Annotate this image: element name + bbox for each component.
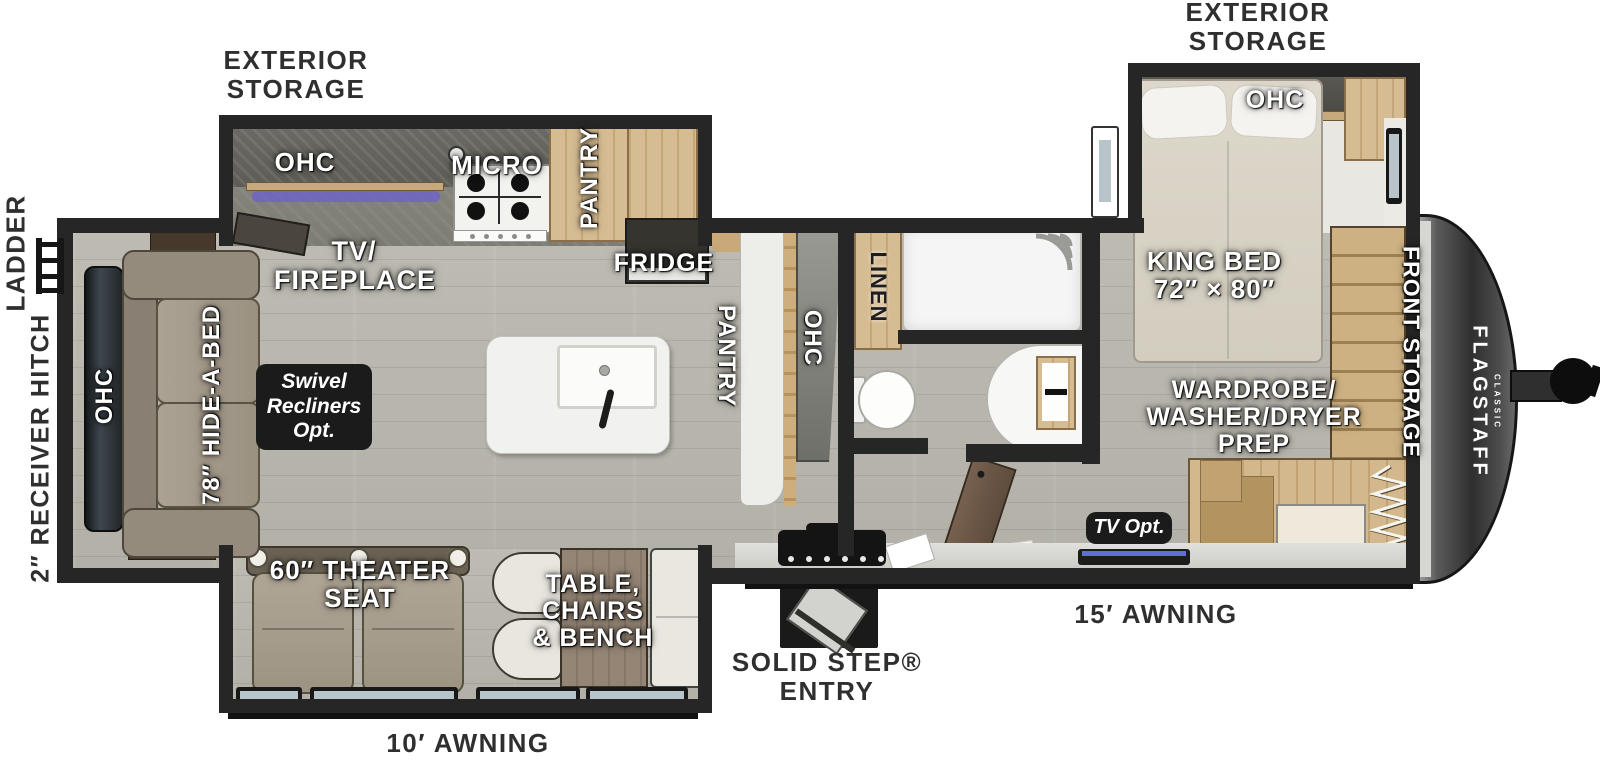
bath-wall-bottom-right [966,444,1100,462]
hall-pantry-label: PANTRY [712,305,740,407]
bedroom-window-left [1091,126,1119,218]
awning-10-label: 10′ AWNING [368,729,568,758]
grate-line [459,196,541,198]
label-line: KING BED [1122,247,1307,275]
kitchen-pantry-label: PANTRY [576,127,604,229]
label-line: 60″ THEATER [250,556,470,584]
label-line: TV/ [274,237,434,266]
badge-line: Recliners [256,395,372,420]
tv-screen [1082,551,1186,556]
king-slide-wall-left [1128,63,1142,233]
label-line: TABLE, [528,571,658,598]
ladder-icon [36,238,64,294]
hall-pantry-wood-edge [784,228,796,506]
exterior-griddle [778,530,886,566]
label-line: & BENCH [528,625,658,652]
label-line: EXTERIOR [1168,0,1348,27]
label-line: WASHER/DRYER [1144,404,1364,431]
badge-line: TV Opt. [1086,516,1172,540]
linen-label: LINEN [865,252,891,323]
kitchen-ohc-label: OHC [255,148,355,176]
solid-step-entry-label: SOLID STEP® ENTRY [717,648,937,705]
burner [511,202,529,220]
label-line: STORAGE [206,75,386,104]
sofa-arm [122,508,260,558]
label-line: 72″ × 80″ [1122,275,1307,303]
burner [467,202,485,220]
flagstaff-logo: FLAGSTAFF [1468,325,1491,478]
kitchen-slide-wall-left [219,115,233,246]
shower-head-icon [1018,230,1076,276]
hall-ohc-label: OHC [798,310,826,366]
exterior-storage-label-left: EXTERIOR STORAGE [206,46,386,103]
tv-option-badge: TV Opt. [1086,512,1172,544]
label-line: ENTRY [717,677,937,706]
swivel-recliners-option-badge: Swivel Recliners Opt. [256,364,372,450]
label-line: STORAGE [1168,27,1348,56]
awning-15-label: 15′ AWNING [1056,600,1256,629]
label-line: WARDROBE/ [1144,377,1364,404]
hall-pantry-counter [740,228,784,506]
rear-ohc-label: OHC [91,368,119,424]
pillow [1140,84,1229,140]
micro-label: MICRO [447,151,547,179]
bedroom-window-right [1386,128,1402,204]
king-slide-wall-top [1128,63,1420,77]
bath-wall-left [838,226,854,556]
top-wall-rear [57,218,233,233]
ladder-label: LADDER [2,194,31,311]
dinette-label: TABLE, CHAIRS & BENCH [528,571,658,652]
wardrobe-step-top [1200,460,1242,502]
kitchen-ohc-shelf [246,182,444,191]
wardrobe-label: WARDROBE/ WASHER/DRYER PREP [1144,377,1364,458]
oven-front [453,230,547,242]
receiver-hitch-label: 2″ RECEIVER HITCH [27,313,55,582]
top-wall-mid [698,218,1144,233]
sink-drain [599,365,610,376]
bath-wall-right [1082,226,1100,464]
door-handle [977,470,986,479]
classic-logo: CLASSIC [1493,374,1502,430]
door-awning-rail [745,584,1413,589]
exterior-storage-label-right: EXTERIOR STORAGE [1168,0,1348,55]
king-slide-wall-right [1406,63,1420,233]
label-line: EXTERIOR [206,46,386,75]
sofa-back [122,262,158,548]
vanity-sink-cabinet [1036,356,1076,430]
theater-seat-label: 60″ THEATER SEAT [250,556,470,612]
kitchen-ohc-glass [252,191,440,202]
solid-step-stairs [780,584,878,648]
hide-a-bed-label: 78″ HIDE-A-BED [198,305,226,505]
rear-awning-rail [228,713,698,719]
tv-fireplace-label: TV/ FIREPLACE [274,237,434,295]
label-line: FIREPLACE [274,266,434,295]
bottom-wall-rear [57,568,233,583]
label-line: SOLID STEP® [717,648,937,677]
kitchen-slide-wall-top [219,115,712,129]
bath-wall-bottom-left [850,438,928,454]
bottom-wall-door-side [698,568,1422,584]
king-bed-label: KING BED 72″ × 80″ [1122,247,1307,303]
bedroom-ohc-label: OHC [1225,87,1325,114]
toilet [858,370,916,430]
label-line: PREP [1144,431,1364,458]
badge-line: Swivel [256,370,372,395]
living-slide-wall-bottom [219,699,712,713]
sofa-arm [122,250,260,300]
rv-floorplan: Swivel Recliners Opt. TV Opt. EXTERIOR S… [0,0,1600,763]
kitchen-island [486,336,670,454]
bedroom-tv [1078,549,1190,565]
fridge-label: FRIDGE [604,250,724,277]
vanity-faucet [1045,389,1067,395]
front-storage-label: FRONT STORAGE [1398,246,1425,458]
label-line: CHAIRS [528,598,658,625]
living-slide-wall-left [219,545,233,713]
shower-wall-bottom [898,330,1084,344]
label-line: SEAT [250,584,470,612]
badge-line: Opt. [256,419,372,444]
dinette-bench [650,548,704,688]
shower [902,226,1082,332]
